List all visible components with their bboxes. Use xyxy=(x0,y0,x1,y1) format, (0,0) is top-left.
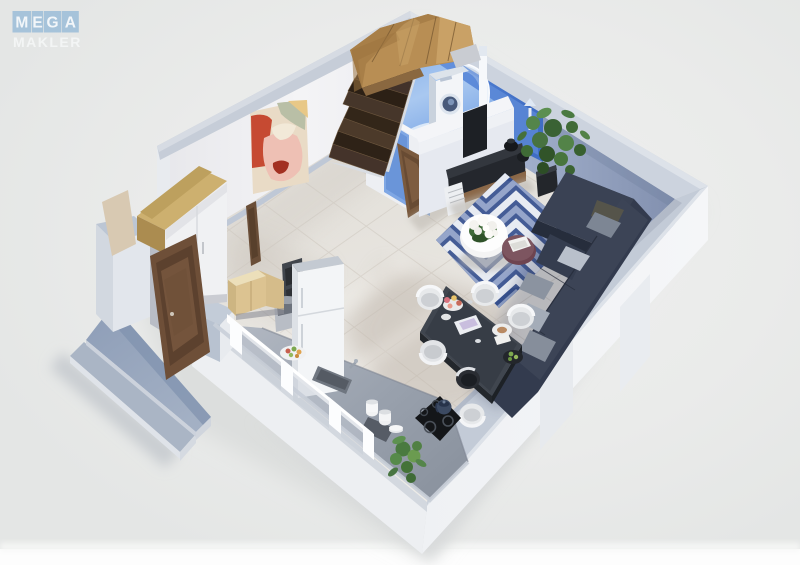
svg-text:A: A xyxy=(65,15,76,32)
svg-text:M: M xyxy=(15,15,28,32)
svg-text:MAKLER: MAKLER xyxy=(13,34,82,50)
svg-text:G: G xyxy=(46,15,58,32)
svg-text:E: E xyxy=(32,15,42,32)
